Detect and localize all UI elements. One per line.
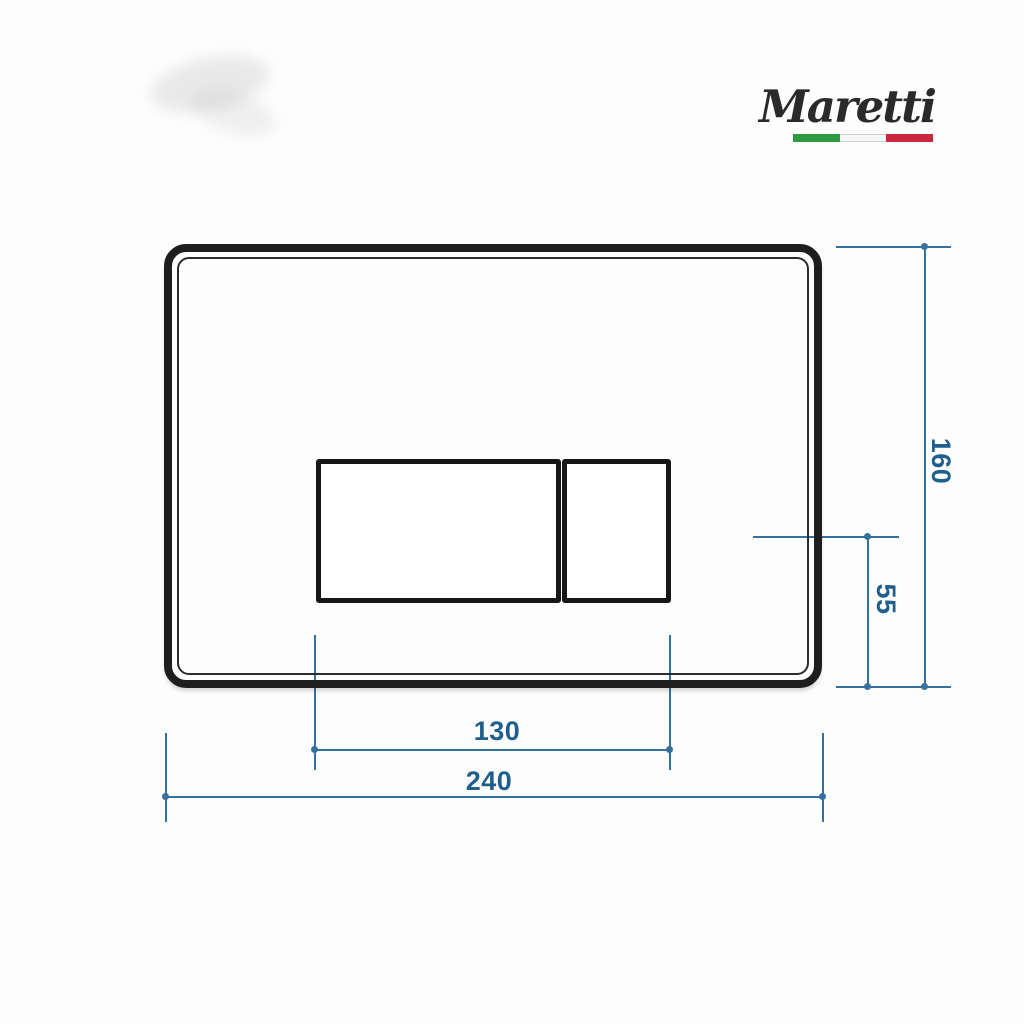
italian-flag-stripe: [793, 134, 933, 142]
dim-marker-dot: [311, 746, 318, 753]
dim-line-55: [867, 536, 869, 687]
ext-line-240-left: [165, 733, 167, 822]
italian-flag-red: [886, 134, 933, 142]
flush-button-large: [316, 459, 561, 603]
drawing-canvas: Maretti 160 55 130 240: [0, 0, 1024, 1024]
dim-marker-dot: [819, 793, 826, 800]
italian-flag-green: [793, 134, 840, 142]
italian-flag-white: [840, 134, 887, 142]
dim-label-55: 55: [872, 569, 900, 629]
dim-marker-dot: [162, 793, 169, 800]
smudge-artifact: [146, 46, 274, 122]
ext-line-160-bottom: [836, 686, 951, 688]
dim-marker-dot: [864, 683, 871, 690]
dim-marker-dot: [864, 533, 871, 540]
brand-logo-text: Maretti: [742, 84, 952, 129]
dim-label-130: 130: [447, 716, 547, 746]
dim-marker-dot: [921, 683, 928, 690]
ext-line-160-top: [836, 246, 951, 248]
dim-label-160: 160: [927, 431, 955, 491]
brand-logo: Maretti: [742, 84, 952, 154]
flush-button-small: [562, 459, 671, 603]
smudge-artifact: [186, 80, 280, 145]
dim-label-240: 240: [439, 766, 539, 796]
dim-line-130: [314, 749, 671, 751]
dim-marker-dot: [666, 746, 673, 753]
ext-line-240-right: [822, 733, 824, 822]
dim-marker-dot: [921, 243, 928, 250]
